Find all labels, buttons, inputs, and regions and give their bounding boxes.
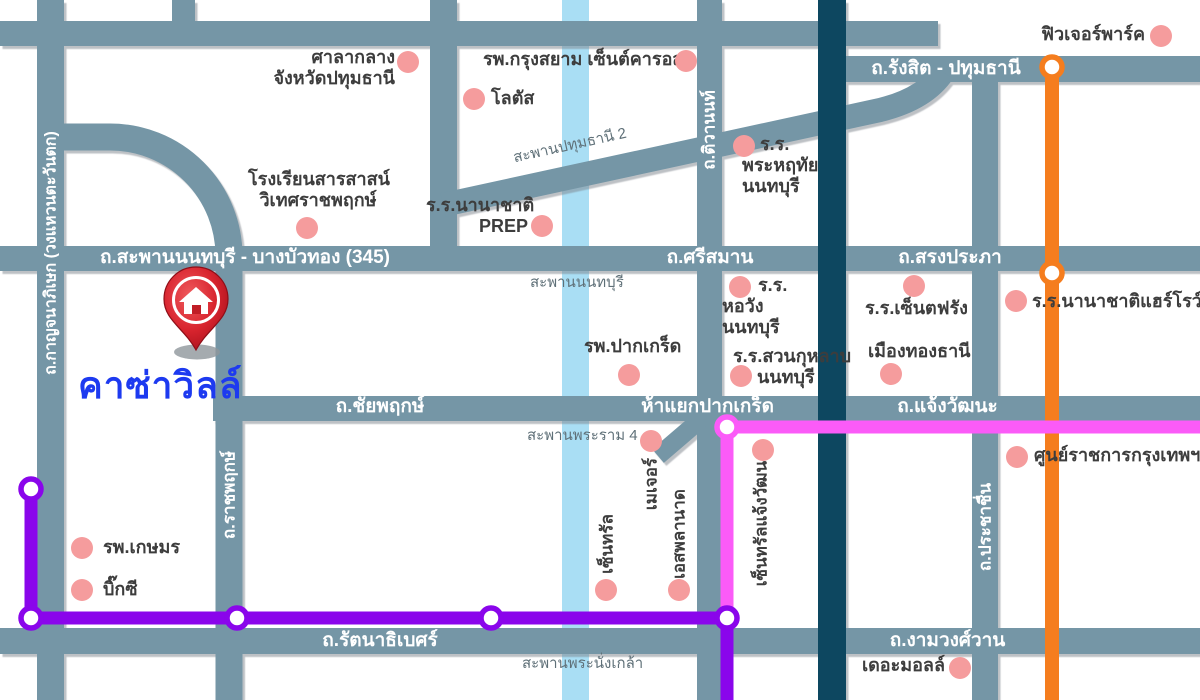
bridge-label-rama4: สะพานพระราม 4 <box>527 427 638 445</box>
dot-the-mall <box>949 657 971 679</box>
place-kasem-hospital: รพ.เกษมร <box>103 537 180 558</box>
place-bigc: บิ๊กซี <box>103 579 138 600</box>
place-suankularb-line2: นนทบุรี <box>757 367 851 388</box>
place-prep-line1: ร.ร.นานาชาติ <box>426 195 528 216</box>
road-label-tiwanon: ถ.ติวานนท์ <box>696 90 723 170</box>
road-label-rangsit: ถ.รังสิต - ปทุมธานี <box>865 57 1027 81</box>
place-lotus: โลตัส <box>491 88 534 109</box>
place-horwang-line2: หอวัง <box>722 296 787 317</box>
place-government-center: ศูนย์ราชการกรุงเทพฯ <box>1034 445 1200 466</box>
place-horwang-line3: นนทบุรี <box>722 317 787 338</box>
place-city-hall-line2: จังหวัดปทุมธานี <box>245 68 395 89</box>
place-phraharuthai-line3: นนทบุรี <box>742 176 818 197</box>
dot-stfrancis <box>903 275 925 297</box>
dot-government-center <box>1006 446 1028 468</box>
road-label-prachachuen: ถ.ประชาชื่น <box>972 483 999 571</box>
place-sarasas-line1: โรงเรียนสารสาสน์ <box>248 169 388 190</box>
place-esplanade: เอสพลานาด <box>666 489 693 579</box>
place-sarasas-school: โรงเรียนสารสาสน์ วิเทศราชพฤกษ์ <box>248 169 388 211</box>
place-suankularb-line1: ร.ร.สวนกุหลาบ <box>733 346 851 367</box>
dot-future-park <box>1150 25 1172 47</box>
place-prep-line2: PREP <box>426 216 528 237</box>
place-suankularb-school: ร.ร.สวนกุหลาบ นนทบุรี <box>733 346 851 388</box>
dot-central-chaengwatthana <box>752 439 774 461</box>
road-label-chaiyaphruek: ถ.ชัยพฤกษ์ <box>315 395 445 419</box>
road-label-songprapha: ถ.สรงประภา <box>885 246 1015 270</box>
dot-pakkret <box>618 364 640 386</box>
location-map: ถ.สะพานนนทบุรี - บางบัวทอง (345) ถ.ศรีสม… <box>0 0 1200 700</box>
dot-prep <box>531 215 553 237</box>
place-prep-school: ร.ร.นานาชาติ PREP <box>426 195 528 237</box>
place-phraharuthai-line2: พระหฤทัย <box>742 155 818 176</box>
project-name: คาซ่าวิลล์ <box>78 356 243 415</box>
dot-city-hall <box>397 51 419 73</box>
road-label-chaengwatthana: ถ.แจ้งวัฒนะ <box>880 395 1015 419</box>
dot-krungsiam <box>675 50 697 72</box>
dot-phraharuthai <box>733 135 755 157</box>
dot-bigc <box>71 579 93 601</box>
place-sarasas-line2: วิเทศราชพฤกษ์ <box>248 190 388 211</box>
dot-harrow <box>1005 290 1027 312</box>
place-central: เซ็นทรัล <box>594 514 621 574</box>
place-stfrancis-school: ร.ร.เซ็นตฟรัง <box>865 298 968 319</box>
place-the-mall: เดอะมอลล์ <box>858 655 945 676</box>
dot-muangthong <box>880 363 902 385</box>
place-future-park: ฟิวเจอร์พาร์ค <box>1000 24 1145 45</box>
road-label-rattanathibet: ถ.รัตนาธิเบศร์ <box>310 629 450 653</box>
road-label-ha-yaek-pakkret: ห้าแยกปากเกร็ด <box>625 395 790 419</box>
place-phraharuthai-line1: ร.ร. <box>760 134 818 155</box>
dot-major <box>640 430 662 452</box>
place-horwang-line1: ร.ร. <box>758 275 787 296</box>
place-muangthong: เมืองทองธานี <box>868 341 970 362</box>
dot-kasem <box>71 537 93 559</box>
road-label-ratchaphruek: ถ.ราชพฤกษ์ <box>216 451 243 539</box>
dot-suankularb <box>730 365 752 387</box>
road-label-kanchanaphisek: ถ.กาญจนาภิเษก (วงแหวนตะวันตก) <box>39 131 64 375</box>
place-harrow-school: ร.ร.นานาชาติแฮร์โรว์ <box>1032 291 1200 312</box>
road-label-345: ถ.สะพานนนทบุรี - บางบัวทอง (345) <box>100 246 380 270</box>
road-label-srisaman: ถ.ศรีสมาน <box>645 246 775 270</box>
bridge-label-nonthaburi: สะพานนนทบุรี <box>530 274 624 292</box>
bridge-label-phranangklao: สะพานพระนั่งเกล้า <box>522 655 643 673</box>
place-major: เมเจอร์ <box>638 458 665 510</box>
dot-lotus <box>463 88 485 110</box>
dot-horwang <box>729 276 751 298</box>
dot-sarasas <box>296 217 318 239</box>
dot-central <box>595 579 617 601</box>
dot-esplanade <box>668 579 690 601</box>
place-city-hall-line1: ศาลากลาง <box>245 47 395 68</box>
road-label-ngamwongwan: ถ.งามวงศ์วาน <box>880 629 1015 653</box>
place-central-chaengwatthana: เซ็นทรัลแจ้งวัฒนะ <box>748 452 775 587</box>
place-krungsiam-hospital: รพ.กรุงสยาม เซ็นต์คารอส <box>483 49 683 70</box>
place-pakkret-hospital: รพ.ปากเกร็ด <box>584 336 681 357</box>
place-city-hall: ศาลากลาง จังหวัดปทุมธานี <box>245 47 395 89</box>
